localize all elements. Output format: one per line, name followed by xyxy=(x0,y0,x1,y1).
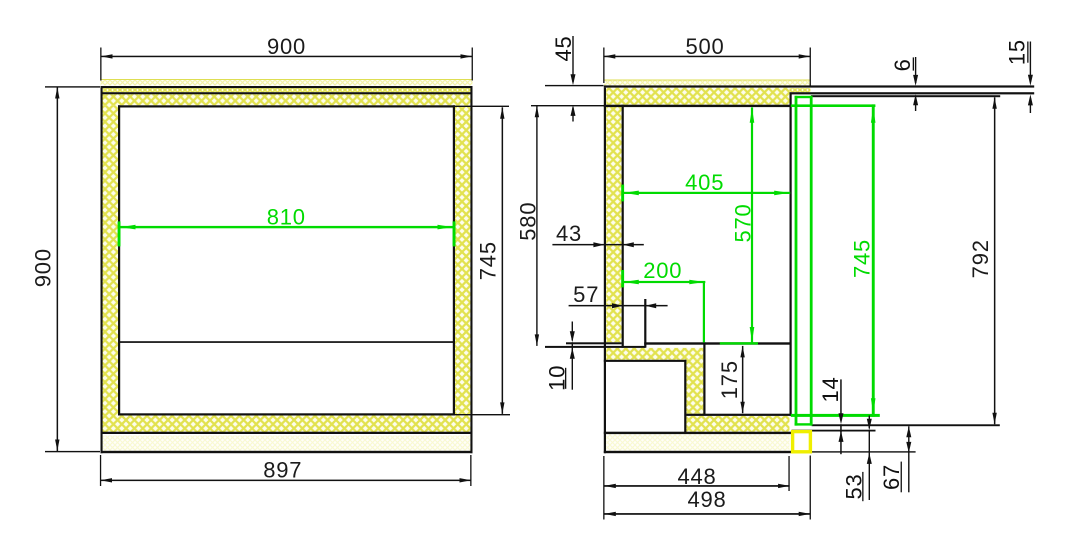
svg-text:45: 45 xyxy=(551,35,576,61)
svg-text:580: 580 xyxy=(515,202,540,241)
svg-text:897: 897 xyxy=(263,458,302,483)
svg-text:14: 14 xyxy=(818,376,843,402)
svg-text:67: 67 xyxy=(879,464,904,490)
svg-text:745: 745 xyxy=(476,241,501,280)
svg-text:745: 745 xyxy=(849,239,874,278)
svg-text:498: 498 xyxy=(687,487,726,512)
svg-text:175: 175 xyxy=(717,360,742,399)
svg-text:43: 43 xyxy=(556,221,582,246)
svg-text:405: 405 xyxy=(685,170,724,195)
svg-text:15: 15 xyxy=(1005,39,1030,65)
svg-text:200: 200 xyxy=(643,258,682,283)
svg-text:792: 792 xyxy=(968,239,993,278)
svg-text:810: 810 xyxy=(267,205,306,230)
svg-text:6: 6 xyxy=(890,58,915,71)
svg-text:500: 500 xyxy=(685,34,724,59)
svg-text:900: 900 xyxy=(267,34,306,59)
svg-text:57: 57 xyxy=(573,282,599,307)
svg-text:900: 900 xyxy=(31,248,56,287)
svg-text:448: 448 xyxy=(677,464,716,489)
svg-text:570: 570 xyxy=(731,203,756,242)
